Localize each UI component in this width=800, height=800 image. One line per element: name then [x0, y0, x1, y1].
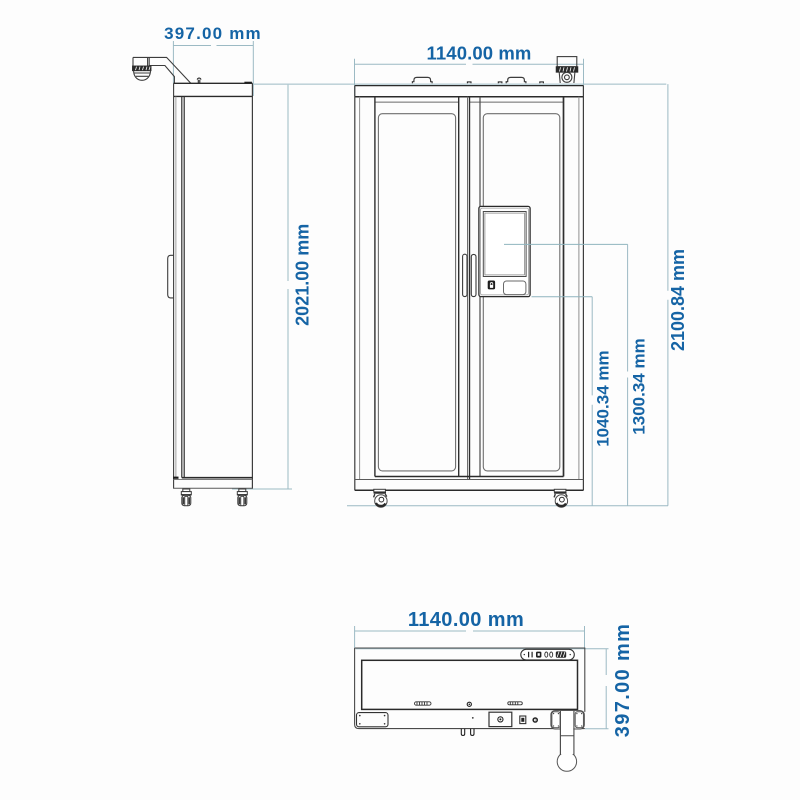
svg-text:1140.00 mm: 1140.00 mm: [408, 609, 524, 631]
svg-text:397.00 mm: 397.00 mm: [612, 623, 634, 737]
svg-text:1040.34 mm: 1040.34 mm: [594, 350, 613, 446]
svg-text:2021.00 mm: 2021.00 mm: [293, 224, 313, 326]
svg-text:1140.00 mm: 1140.00 mm: [427, 43, 532, 64]
svg-text:1300.34 mm: 1300.34 mm: [630, 338, 649, 434]
svg-text:2100.84 mm: 2100.84 mm: [668, 249, 688, 351]
svg-text:397.00 mm: 397.00 mm: [164, 24, 262, 43]
